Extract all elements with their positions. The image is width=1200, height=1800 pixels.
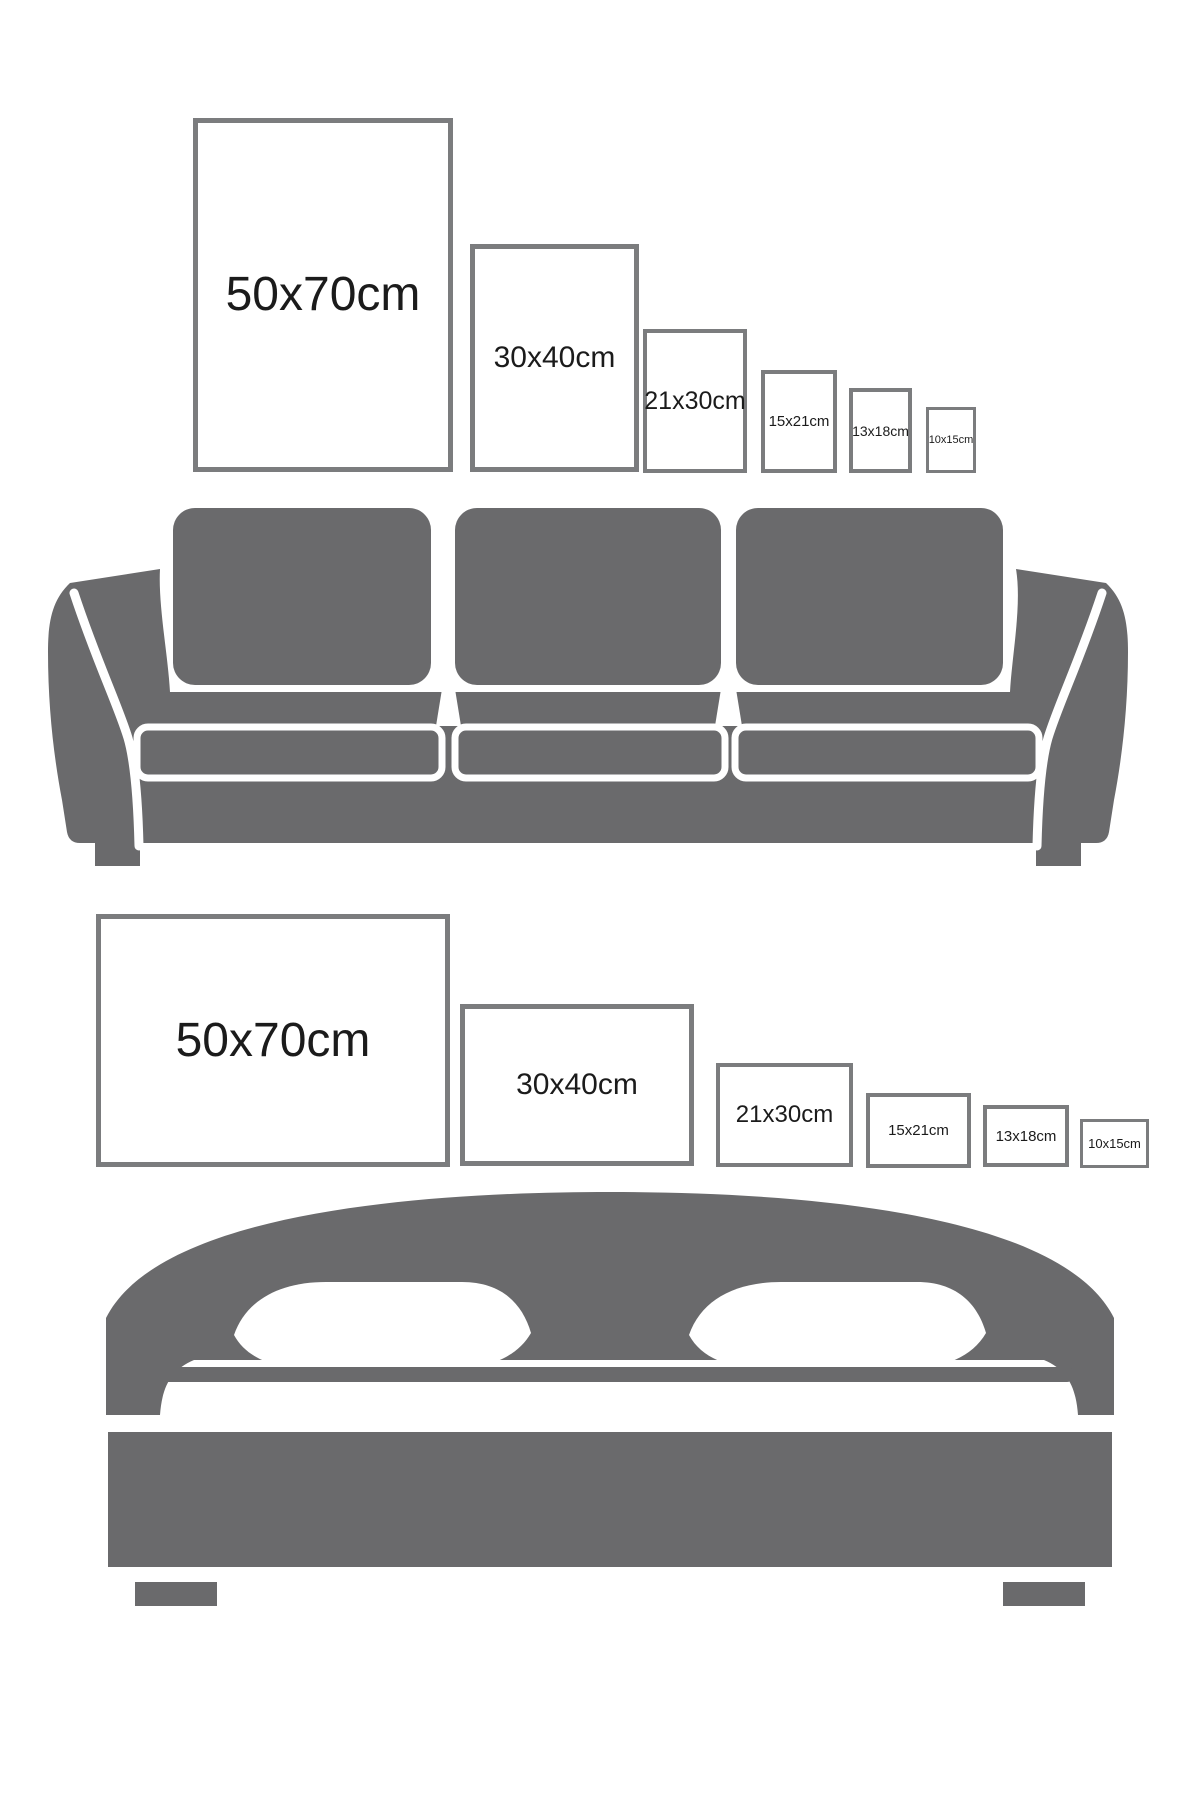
size-frame-label: 15x21cm (769, 414, 830, 429)
bed-pillow-left (234, 1282, 531, 1369)
size-frame-label: 21x30cm (736, 1103, 833, 1127)
bed-icon (80, 1190, 1160, 1620)
sofa-seat-cushion (137, 727, 442, 778)
bed-foot-right (1003, 1582, 1085, 1606)
size-frame-30x40cm-sofa: 30x40cm (470, 244, 639, 472)
size-frame-10x15cm-sofa: 10x15cm (926, 407, 976, 473)
sofa-icon (40, 500, 1160, 880)
bed-foot-left (135, 1582, 217, 1606)
size-frame-30x40cm-bed: 30x40cm (460, 1004, 694, 1166)
size-frame-label: 15x21cm (888, 1123, 949, 1138)
size-frame-13x18cm-sofa: 13x18cm (849, 388, 912, 473)
sofa-foot-right (1036, 843, 1081, 866)
sofa-seat-cushion (455, 727, 725, 778)
size-frame-15x21cm-bed: 15x21cm (866, 1093, 971, 1168)
size-frame-21x30cm-bed: 21x30cm (716, 1063, 853, 1167)
size-frame-15x21cm-sofa: 15x21cm (761, 370, 837, 473)
poster-size-comparison-diagram: 50x70cm30x40cm21x30cm15x21cm13x18cm10x15… (0, 0, 1200, 1800)
size-frame-50x70cm-sofa: 50x70cm (193, 118, 453, 472)
size-frame-label: 30x40cm (494, 343, 616, 373)
size-frame-label: 50x70cm (226, 271, 421, 319)
bed-pillow-right (689, 1282, 986, 1369)
size-frame-label: 30x40cm (516, 1070, 638, 1100)
bed-mattress-line (146, 1367, 1074, 1382)
size-frame-label: 13x18cm (852, 424, 909, 438)
size-frame-50x70cm-bed: 50x70cm (96, 914, 450, 1167)
size-frame-label: 50x70cm (176, 1017, 371, 1065)
size-frame-13x18cm-bed: 13x18cm (983, 1105, 1069, 1167)
size-frame-label: 10x15cm (929, 435, 974, 446)
sofa-back-cushion (173, 508, 431, 685)
size-frame-10x15cm-bed: 10x15cm (1080, 1119, 1149, 1168)
bed-base (108, 1432, 1112, 1567)
sofa-foot-left (95, 843, 140, 866)
size-frame-label: 13x18cm (996, 1129, 1057, 1144)
sofa-back-cushion (736, 508, 1003, 685)
size-frame-label: 21x30cm (644, 389, 745, 414)
sofa-seat-cushion (735, 727, 1039, 778)
sofa-back-cushion (455, 508, 721, 685)
size-frame-21x30cm-sofa: 21x30cm (643, 329, 747, 473)
size-frame-label: 10x15cm (1088, 1137, 1141, 1150)
